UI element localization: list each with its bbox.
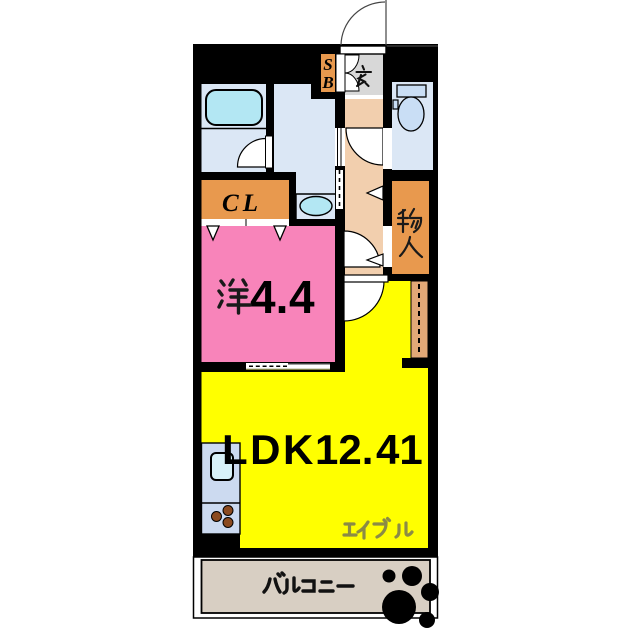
svg-text:S: S bbox=[323, 55, 332, 74]
svg-text:4.: 4. bbox=[250, 271, 288, 323]
svg-text:CL: CL bbox=[222, 190, 262, 217]
svg-text:41: 41 bbox=[376, 426, 423, 473]
svg-text:B: B bbox=[321, 73, 333, 92]
svg-text:LDK: LDK bbox=[222, 426, 316, 473]
svg-text:12.: 12. bbox=[315, 426, 373, 473]
svg-text:4: 4 bbox=[289, 271, 315, 323]
